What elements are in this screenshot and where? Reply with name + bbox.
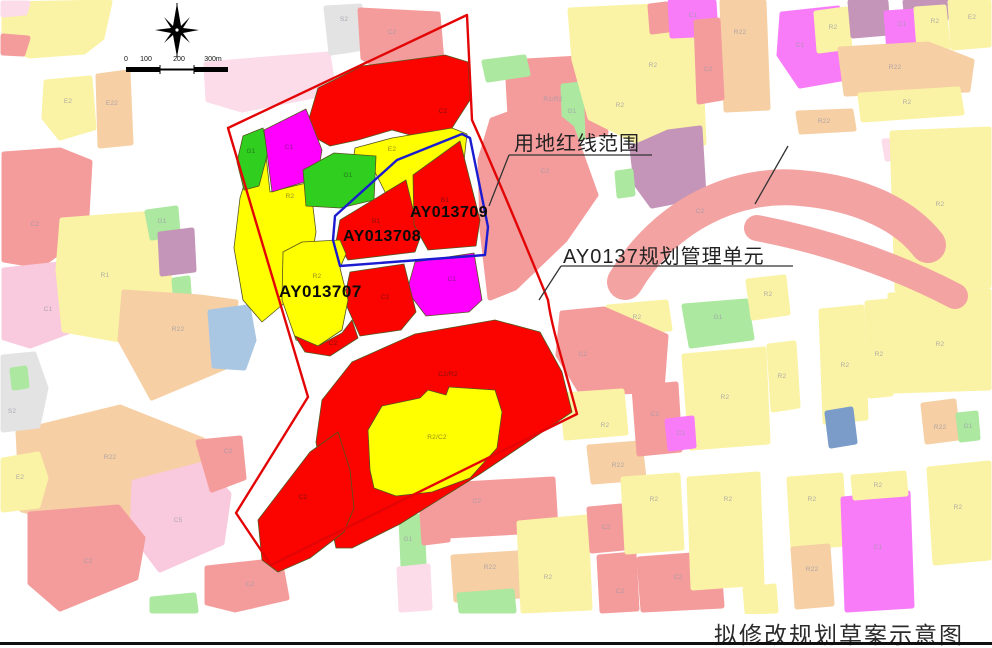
parcel-code-label: C2 (473, 499, 482, 506)
parcel-code-label: C2 (329, 341, 338, 348)
parcel-code-label: R2 (650, 497, 659, 504)
parcel-c1-mid (407, 253, 482, 316)
scale-tick-label: 100 (140, 56, 152, 63)
parcel-code-label: C2 (704, 67, 713, 74)
parcel-code-label: C2 (388, 30, 397, 37)
parcel-code-label: C2 (696, 209, 705, 216)
parcel-code-label: R2 (764, 292, 773, 299)
parcel-code-label: R2 (724, 497, 733, 504)
parcel-code-label: S2 (340, 17, 348, 24)
parcel-code-label: C2 (541, 169, 550, 176)
parcel-code-label: R22 (818, 119, 831, 126)
parcel-code-label: C2/R2 (438, 372, 457, 379)
parcel-code-label: R22 (889, 65, 902, 72)
parcel-code-label: C1 (874, 545, 883, 552)
red-line-scope-label: 用地红线范围 (514, 127, 640, 156)
context-parcels (3, 2, 989, 612)
parcel-code-label: C2 (579, 352, 588, 359)
parcel-code-label: R2 (931, 19, 940, 26)
parcel-code-label: R2 (616, 103, 625, 110)
parcel-code-label: R2 (808, 497, 817, 504)
parcel-code-label: R2 (875, 352, 884, 359)
parcel-code-label: R2 (721, 395, 730, 402)
parcel-code-label: R2 (954, 505, 963, 512)
parcel-code-label: R22 (934, 425, 947, 432)
parcel-code-label: C1 (796, 43, 805, 50)
parcel-code-label: R22 (172, 327, 185, 334)
parcel-code-label: C2 (381, 295, 390, 302)
parcel-code-label: C5 (174, 518, 183, 525)
parcel-code-label: E22 (106, 101, 118, 108)
parcel-code-label: G1 (963, 424, 972, 431)
planning-unit-label: AY0137规划管理单元 (563, 240, 765, 269)
parcel-code-label: R22 (734, 30, 747, 37)
parcel-code-label: R2/C2 (427, 435, 446, 442)
parcel-code-label: R2 (649, 63, 658, 70)
parcel-code-label: R2 (286, 194, 295, 201)
parcel-code-label: C2 (84, 559, 93, 566)
parcel-code-label: C2 (674, 575, 683, 582)
parcel-code-label: G1 (343, 173, 352, 180)
parcel-id-ay013708: AY013708 (343, 228, 421, 246)
parcel-code-label: R22 (612, 463, 625, 470)
parcel-code-label: R2 (778, 374, 787, 381)
parcel-code-label: R2 (936, 342, 945, 349)
parcel-code-label: E2 (968, 15, 976, 22)
parcel-code-label: C2 (616, 589, 625, 596)
parcel-code-label: C1 (44, 307, 53, 314)
parcel-code-label: C2 (246, 582, 255, 589)
parcel-code-label: C2 (439, 109, 448, 116)
planning-map-figure: E2E22C2C1R1G1R22R22S2E2C5C2C2C2S2C2R1/R2… (0, 0, 992, 648)
parcel-code-label: R2 (936, 202, 945, 209)
parcel-code-label: E2 (64, 99, 72, 106)
scale-tick-label: 300m (204, 56, 222, 63)
parcel-code-label: R2 (313, 274, 322, 281)
parcel-code-label: R2 (841, 363, 850, 370)
bottom-rule (0, 642, 992, 645)
parcel-code-label: R2 (829, 25, 838, 32)
scale-tick-label: 200 (173, 56, 185, 63)
parcel-code-label: C1 (285, 145, 294, 152)
parcel-code-label: B1 (372, 219, 380, 226)
parcel-code-label: C2 (299, 495, 308, 502)
compass-rose-icon (155, 3, 199, 57)
scale-tick-label: 0 (124, 56, 128, 63)
map-canvas (0, 0, 992, 614)
parcel-id-ay013709: AY013709 (410, 204, 488, 222)
parcel-code-label: C2 (224, 449, 233, 456)
parcel-code-label: G1 (157, 219, 166, 226)
parcel-id-ay013707: AY013707 (279, 282, 362, 302)
parcel-code-label: G1 (246, 149, 255, 156)
parcel-code-label: R2 (601, 423, 610, 430)
parcel-code-label: C1 (689, 13, 698, 20)
parcel-code-label: G1 (713, 315, 722, 322)
parcel-code-label: R2 (633, 315, 642, 322)
parcel-code-label: R1/R2 (543, 97, 562, 104)
parcel-code-label: E2 (388, 147, 396, 154)
parcel-code-label: R2 (544, 575, 553, 582)
parcel-code-label: C2 (602, 525, 611, 532)
parcel-code-label: C1 (898, 22, 907, 29)
parcel-code-label: E2 (16, 475, 24, 482)
parcel-code-label: R22 (104, 455, 117, 462)
parcel-code-label: G1 (403, 537, 412, 544)
parcel-code-label: R2 (903, 100, 912, 107)
parcel-code-label: C2 (651, 412, 660, 419)
parcel-code-label: G1 (567, 109, 576, 116)
parcel-code-label: R2 (874, 483, 883, 490)
parcel-code-label: C1 (448, 277, 457, 284)
parcel-code-label: R1 (101, 273, 110, 280)
parcel-code-label: R22 (806, 567, 819, 574)
parcel-code-label: R22 (484, 565, 497, 572)
parcel-code-label: C1 (677, 431, 686, 438)
parcel-code-label: S2 (8, 409, 16, 416)
parcel-code-label: C2 (31, 222, 40, 229)
